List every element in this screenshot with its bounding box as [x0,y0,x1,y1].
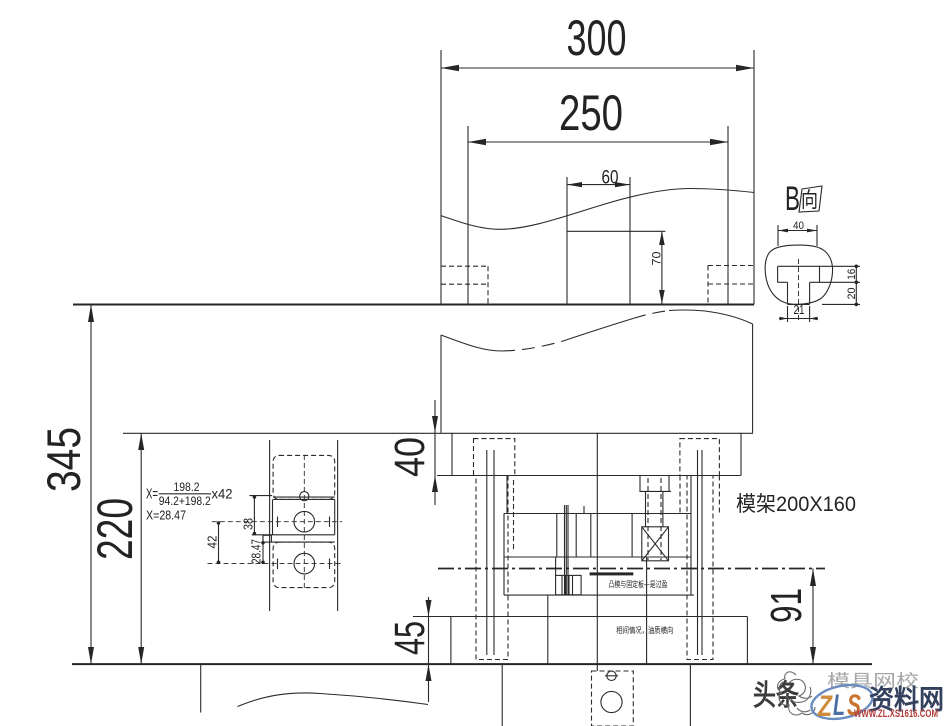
svg-text:40: 40 [793,220,804,232]
svg-text:X=: X= [146,486,158,503]
svg-text:16: 16 [846,269,858,280]
svg-text:94.2+198.2: 94.2+198.2 [159,494,211,508]
svg-text:X=28.47: X=28.47 [146,508,186,523]
svg-text:x42: x42 [212,486,233,502]
svg-text:42: 42 [206,535,220,548]
svg-text:38: 38 [242,518,256,530]
svg-text:45: 45 [386,621,434,655]
svg-text:向: 向 [801,189,818,212]
svg-text:B: B [785,180,800,218]
svg-text:凸模与固定板—是过盈: 凸模与固定板—是过盈 [609,579,668,589]
svg-text:220: 220 [87,498,143,560]
svg-text:相间情况，油质横向: 相间情况，油质横向 [616,625,673,635]
svg-text:模架200X160: 模架200X160 [736,493,856,516]
svg-text:70: 70 [650,251,664,265]
svg-text:头条: 头条 [753,679,799,712]
svg-text:91: 91 [762,588,811,623]
svg-text:20: 20 [846,288,858,300]
svg-text:60: 60 [602,168,619,189]
svg-text:250: 250 [559,85,623,141]
svg-text:L: L [833,689,845,722]
svg-text:28.47: 28.47 [249,539,264,564]
svg-text:40: 40 [386,437,434,477]
svg-text:345: 345 [37,427,90,492]
svg-text:WWW.ZL.XS1616.COM: WWW.ZL.XS1616.COM [854,708,938,720]
svg-text:Z: Z [817,690,833,723]
svg-text:300: 300 [567,10,627,66]
svg-text:198.2: 198.2 [174,482,200,494]
svg-text:21: 21 [794,302,805,317]
